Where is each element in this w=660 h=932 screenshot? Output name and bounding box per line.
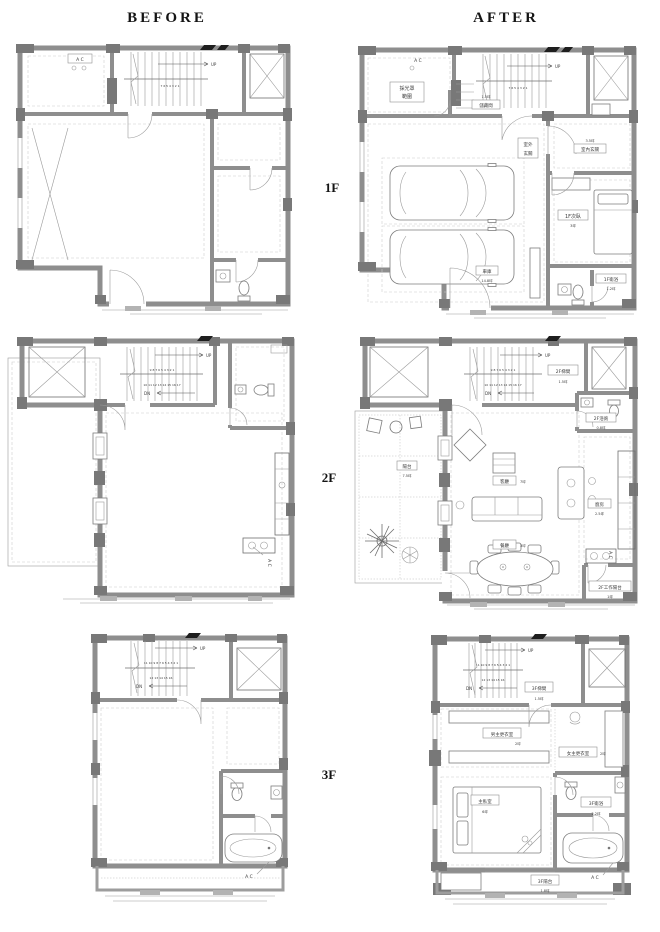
svg-text:玄關: 玄關: [524, 150, 533, 157]
svg-text:12 13 14 15 16: 12 13 14 15 16: [482, 678, 505, 682]
balcony: [97, 866, 283, 901]
svg-text:7坪: 7坪: [520, 479, 526, 484]
svg-text:1.2坪: 1.2坪: [606, 286, 616, 291]
elevator: [592, 56, 628, 115]
plan-before-1f: UP 7 6 5 4 3 2 1: [10, 38, 295, 318]
svg-text:UP: UP: [206, 353, 212, 358]
svg-text:11 10 9 8 7 6 5 4 3 2 1: 11 10 9 8 7 6 5 4 3 2 1: [476, 663, 510, 667]
bathroom: 3F衛浴 2.2坪: [555, 777, 625, 863]
entry-porch: [102, 306, 288, 314]
staircase: UP 11 10 9 8 7 6 5 4 3 2 1 12 13 14 15 1…: [463, 643, 534, 698]
female-closet: 女主更衣室 2坪: [559, 711, 623, 767]
svg-text:7.5坪: 7.5坪: [402, 473, 412, 478]
toilet-fixtures: [216, 270, 250, 301]
svg-text:陽台: 陽台: [403, 463, 412, 470]
elevator: [592, 347, 626, 389]
svg-text:主臥室: 主臥室: [478, 798, 492, 805]
elevator: [250, 54, 284, 98]
entry-porch: [63, 596, 290, 603]
svg-text:A C: A C: [76, 57, 84, 63]
ac-label: A C: [68, 54, 92, 70]
svg-text:3F衛浴: 3F衛浴: [589, 800, 604, 807]
svg-text:3F梯間: 3F梯間: [532, 685, 547, 692]
floor-label-1f: 1F: [317, 180, 347, 196]
svg-text:2.2坪: 2.2坪: [591, 811, 601, 816]
terrace-tree: [365, 524, 418, 563]
svg-text:男主更衣室: 男主更衣室: [491, 731, 514, 738]
ceiling-dashes: [106, 347, 284, 587]
living-furniture: [452, 405, 542, 521]
svg-text:9 8 7 6 5 4 3 2 1: 9 8 7 6 5 4 3 2 1: [491, 368, 516, 372]
svg-text:1.8坪: 1.8坪: [540, 888, 550, 893]
pillars: [17, 337, 295, 595]
entry-porch: [446, 310, 634, 318]
dining-label: 餐廳 3坪: [493, 540, 526, 549]
svg-text:1F衛浴: 1F衛浴: [604, 276, 619, 283]
svg-text:餐廳: 餐廳: [500, 542, 509, 549]
bathroom: [221, 776, 282, 862]
svg-text:1F次臥: 1F次臥: [565, 213, 581, 220]
svg-text:3.5坪: 3.5坪: [585, 138, 595, 143]
terrace: [355, 411, 445, 583]
svg-text:UP: UP: [200, 646, 206, 651]
shoe-cabinet: [530, 248, 540, 298]
dining-furniture: [470, 543, 559, 595]
walls: [15, 48, 288, 309]
svg-text:10 11 12 13 14 15 16 17: 10 11 12 13 14 15 16 17: [143, 383, 180, 387]
svg-text:14.8坪: 14.8坪: [481, 278, 493, 283]
svg-text:6坪: 6坪: [482, 809, 488, 814]
svg-text:1.5坪: 1.5坪: [481, 94, 491, 99]
before-title: BEFORE: [97, 10, 237, 27]
svg-text:A C: A C: [607, 551, 613, 559]
svg-text:範圍: 範圍: [402, 93, 412, 100]
doors: [110, 114, 272, 304]
svg-text:3坪: 3坪: [570, 223, 576, 228]
svg-text:2坪: 2坪: [600, 751, 606, 756]
skylight-label: 採光罩 範圍: [390, 82, 424, 102]
svg-text:11 10 9 8 7 6 5 4 3 2 1: 11 10 9 8 7 6 5 4 3 2 1: [144, 661, 178, 665]
svg-text:DN: DN: [466, 686, 472, 691]
floor-label-3f: 3F: [314, 767, 344, 783]
living-label: 客廳 7坪: [493, 476, 526, 485]
plan-before-2f: UP 9 8 7 6 5 4 3 2 1 10 11 12 13 14 15 1…: [5, 333, 305, 605]
male-closet: 男主更衣室 2坪: [449, 709, 555, 770]
staircase: UP 7 6 5 4 3 2 1: [124, 52, 217, 106]
svg-text:採光罩: 採光罩: [399, 85, 414, 92]
bath-label: 1F衛浴 1.2坪: [596, 274, 626, 291]
svg-text:儲藏間: 儲藏間: [479, 102, 493, 109]
elevator-shaft-left: [370, 347, 428, 397]
svg-text:9 8 7 6 5 4 3 2 1: 9 8 7 6 5 4 3 2 1: [150, 368, 175, 372]
elevator: [29, 347, 85, 397]
indoor-foyer-label: 3.5坪 室內玄關: [574, 138, 606, 153]
svg-text:3F陽台: 3F陽台: [538, 878, 553, 885]
staircase: UP 9 8 7 6 5 4 3 2 1 10 11 12 13 14 15 1…: [120, 347, 212, 401]
floor-label-2f: 2F: [314, 470, 344, 486]
bath-room: 2F浴廁 0.8坪: [577, 398, 620, 430]
svg-text:1.5坪: 1.5坪: [534, 696, 544, 701]
svg-text:DN: DN: [136, 684, 142, 689]
after-title: AFTER: [436, 10, 576, 27]
plan-before-3f: UP 11 10 9 8 7 6 5 4 3 2 1 12 13 14 15 1…: [85, 628, 305, 910]
plan-after-3f: UP 11 10 9 8 7 6 5 4 3 2 1 12 13 14 15 1…: [425, 625, 645, 915]
stairwell-label: 3F梯間 1.5坪: [525, 682, 553, 701]
kitchen-label: 廚房 2.5坪: [588, 499, 611, 516]
staircase: UP 9 8 7 6 5 4 3 2 1 10 11 12 13 14 15 1…: [464, 347, 551, 401]
svg-text:UP: UP: [528, 648, 534, 653]
svg-text:女主更衣室: 女主更衣室: [567, 750, 590, 757]
walls: [22, 341, 292, 595]
bath-fixtures: [558, 284, 584, 305]
doors: [177, 700, 201, 724]
stairwell-label: 2F梯間 1.5坪: [548, 365, 578, 384]
svg-text:車庫: 車庫: [483, 268, 492, 275]
bedroom-label: 1F次臥 3坪: [558, 210, 588, 228]
plan-after-2f: UP 9 8 7 6 5 4 3 2 1 10 11 12 13 14 15 1…: [352, 333, 644, 611]
work-balcony: 2F工作陽台 1坪 A C: [588, 551, 631, 599]
svg-text:客廳: 客廳: [500, 478, 509, 485]
elevator: [237, 648, 281, 690]
svg-text:12 13 14 15 16: 12 13 14 15 16: [150, 676, 173, 680]
svg-text:UP: UP: [545, 353, 551, 358]
svg-text:UP: UP: [211, 62, 217, 67]
svg-text:2F梯間: 2F梯間: [556, 368, 571, 375]
svg-text:A C: A C: [414, 58, 422, 64]
floorplan-sheet: BEFORE AFTER 1F 2F 3F: [0, 0, 660, 932]
garage-cars: [382, 158, 524, 292]
outdoor-foyer-label: 室外 玄關: [518, 138, 538, 158]
svg-text:A C: A C: [266, 559, 272, 567]
ac-label: A C: [253, 547, 272, 567]
svg-text:UP: UP: [555, 64, 561, 69]
svg-text:室外: 室外: [524, 141, 533, 148]
pillars: [16, 44, 292, 304]
svg-text:2坪: 2坪: [515, 741, 521, 746]
svg-text:3坪: 3坪: [520, 543, 526, 548]
svg-text:室內玄關: 室內玄關: [581, 146, 599, 153]
ac-label: A C: [410, 58, 422, 70]
svg-text:1坪: 1坪: [607, 594, 613, 599]
svg-text:2F工作陽台: 2F工作陽台: [598, 584, 622, 591]
pillars: [91, 634, 288, 867]
svg-text:DN: DN: [144, 391, 150, 396]
svg-text:2.5坪: 2.5坪: [595, 511, 605, 516]
svg-text:7 6 5 4 3 2 1: 7 6 5 4 3 2 1: [508, 86, 527, 90]
svg-text:10 11 12 13 14 15 16 17: 10 11 12 13 14 15 16 17: [484, 383, 521, 387]
plan-after-1f: UP 7 6 5 4 3 2 1: [352, 38, 644, 323]
svg-text:廚房: 廚房: [595, 501, 604, 508]
svg-text:A C: A C: [245, 874, 253, 880]
svg-text:0.8坪: 0.8坪: [596, 425, 606, 430]
svg-text:2F浴廁: 2F浴廁: [594, 415, 609, 422]
staircase: UP 11 10 9 8 7 6 5 4 3 2 1 12 13 14 15 1…: [125, 641, 206, 696]
svg-text:1.5坪: 1.5坪: [558, 379, 568, 384]
svg-text:A C: A C: [591, 875, 599, 881]
svg-text:7 6 5 4 3 2 1: 7 6 5 4 3 2 1: [160, 84, 179, 88]
elevator: [589, 649, 625, 687]
storage-label: 1.5坪 儲藏間: [472, 94, 500, 109]
svg-text:DN: DN: [485, 391, 491, 396]
